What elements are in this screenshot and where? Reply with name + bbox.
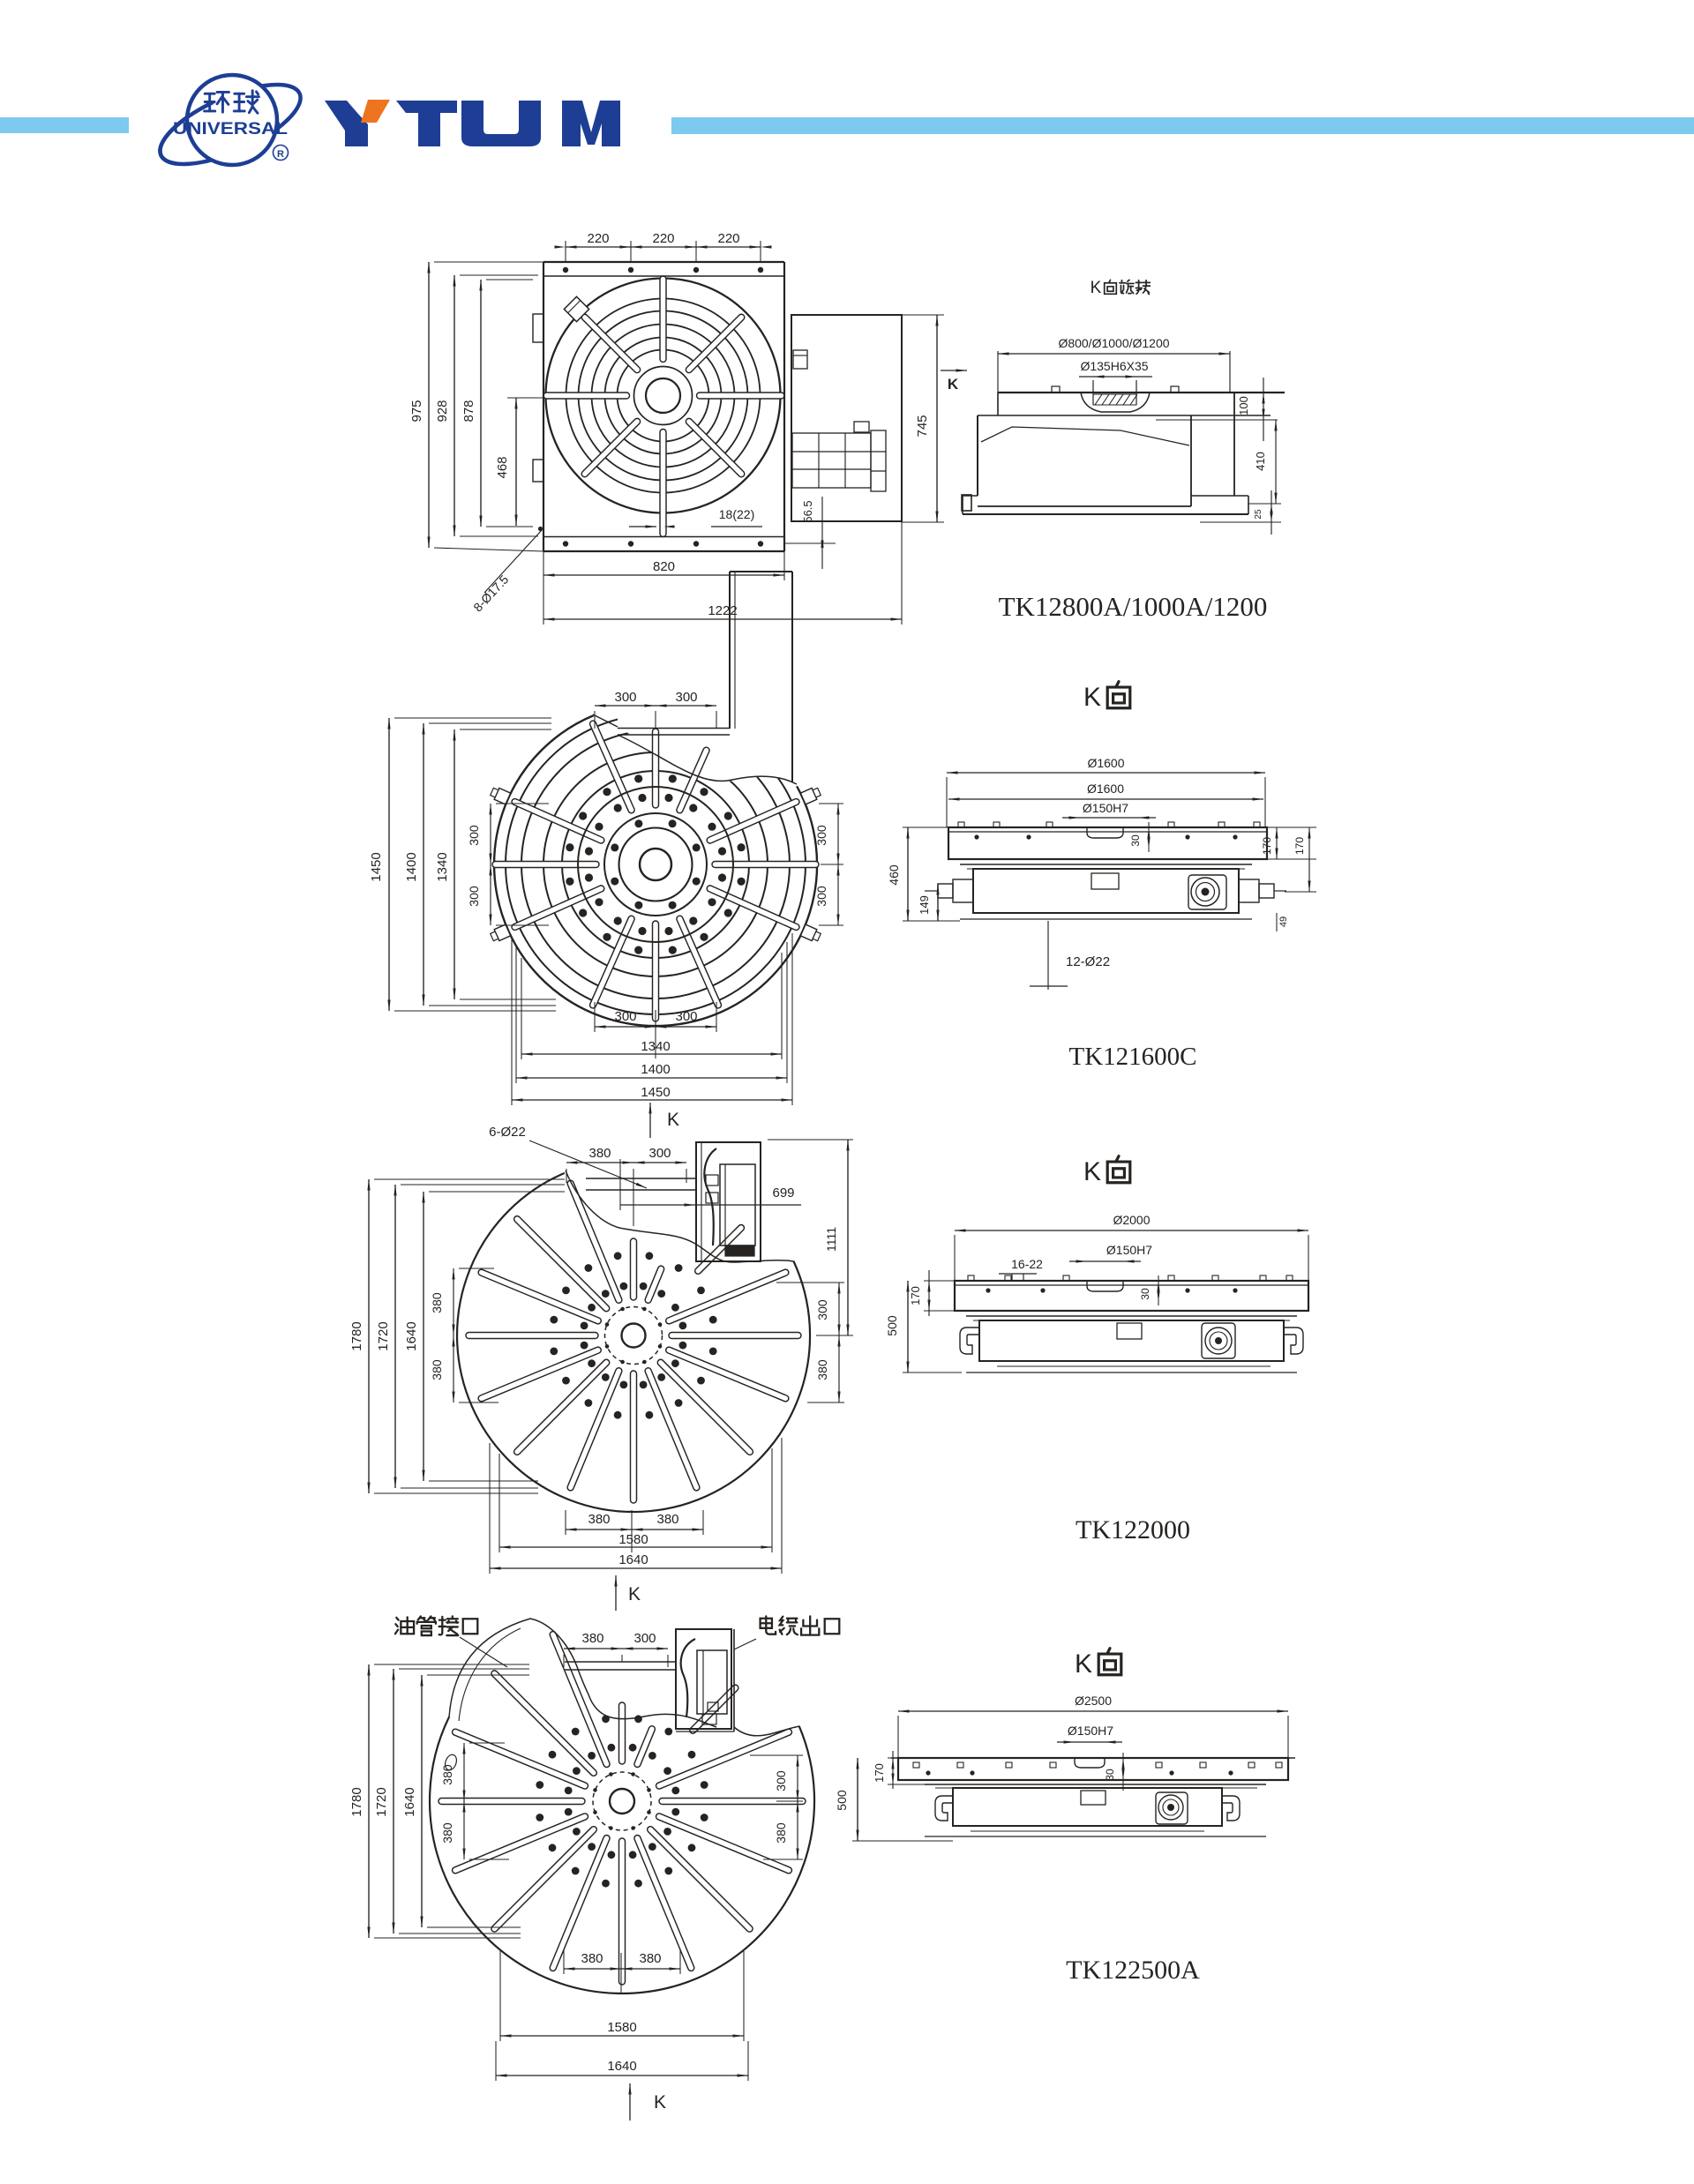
svg-text:1222: 1222 <box>708 603 737 618</box>
svg-text:170: 170 <box>1293 837 1306 855</box>
svg-text:30: 30 <box>1139 1288 1151 1300</box>
svg-text:R: R <box>277 149 284 160</box>
svg-text:380: 380 <box>440 1764 454 1785</box>
svg-text:878: 878 <box>461 400 476 422</box>
svg-text:380: 380 <box>639 1951 661 1966</box>
svg-text:380: 380 <box>774 1822 788 1844</box>
svg-text:1400: 1400 <box>641 1062 670 1077</box>
svg-text:Ø800/Ø1000/Ø1200: Ø800/Ø1000/Ø1200 <box>1058 336 1169 350</box>
svg-text:380: 380 <box>440 1822 454 1844</box>
svg-text:K: K <box>667 1110 679 1130</box>
svg-text:170: 170 <box>873 1763 886 1783</box>
svg-text:12-Ø22: 12-Ø22 <box>1066 954 1110 969</box>
svg-text:Ø150H7: Ø150H7 <box>1083 801 1128 815</box>
svg-text:1111: 1111 <box>824 1227 838 1252</box>
svg-text:928: 928 <box>435 400 450 422</box>
svg-text:25: 25 <box>1254 509 1263 520</box>
svg-text:30: 30 <box>1129 834 1142 847</box>
svg-text:300: 300 <box>774 1770 788 1791</box>
svg-text:K: K <box>628 1584 641 1604</box>
svg-text:380: 380 <box>430 1359 444 1380</box>
svg-text:Ø150H7: Ø150H7 <box>1068 1724 1113 1738</box>
svg-text:Ø1600: Ø1600 <box>1087 782 1124 796</box>
svg-text:745: 745 <box>915 415 930 437</box>
svg-text:380: 380 <box>581 1951 603 1966</box>
svg-text:TK121600C: TK121600C <box>1069 1043 1197 1071</box>
svg-text:1780: 1780 <box>349 1321 364 1350</box>
svg-text:220: 220 <box>587 231 609 246</box>
svg-text:300: 300 <box>814 886 828 907</box>
svg-text:1640: 1640 <box>404 1321 419 1350</box>
svg-text:TK122000: TK122000 <box>1076 1515 1190 1545</box>
svg-text:UNIVERSAL: UNIVERSAL <box>173 120 288 138</box>
svg-text:K: K <box>1091 279 1102 297</box>
svg-text:16-22: 16-22 <box>1011 1257 1043 1271</box>
svg-text:380: 380 <box>588 1146 611 1161</box>
svg-text:500: 500 <box>835 1790 849 1811</box>
svg-text:300: 300 <box>675 1009 697 1024</box>
svg-text:300: 300 <box>814 825 828 846</box>
svg-text:1450: 1450 <box>369 852 384 881</box>
svg-text:1780: 1780 <box>349 1787 364 1816</box>
svg-text:K: K <box>1083 1157 1101 1186</box>
svg-text:300: 300 <box>648 1146 671 1161</box>
svg-text:49: 49 <box>1278 916 1289 927</box>
svg-text:100: 100 <box>1237 396 1250 415</box>
svg-text:380: 380 <box>815 1359 829 1380</box>
svg-text:K: K <box>948 376 959 393</box>
svg-text:380: 380 <box>581 1631 603 1646</box>
svg-text:K: K <box>1075 1649 1092 1679</box>
svg-text:468: 468 <box>495 456 510 478</box>
svg-text:1640: 1640 <box>618 1552 648 1567</box>
svg-text:460: 460 <box>887 864 901 886</box>
svg-text:410: 410 <box>1254 452 1267 471</box>
svg-text:1720: 1720 <box>376 1321 391 1350</box>
svg-text:300: 300 <box>614 690 636 705</box>
svg-text:Ø2000: Ø2000 <box>1113 1213 1150 1227</box>
svg-text:300: 300 <box>467 886 481 907</box>
svg-text:1580: 1580 <box>618 1532 648 1547</box>
svg-text:1340: 1340 <box>435 852 450 881</box>
svg-text:149: 149 <box>918 895 931 915</box>
svg-text:18(22): 18(22) <box>719 507 754 521</box>
svg-text:Ø135H6X35: Ø135H6X35 <box>1080 359 1148 373</box>
svg-text:380: 380 <box>656 1512 678 1527</box>
svg-text:300: 300 <box>633 1631 656 1646</box>
svg-text:1450: 1450 <box>641 1085 670 1100</box>
svg-text:Ø1600: Ø1600 <box>1087 756 1124 770</box>
svg-text:170: 170 <box>1261 837 1273 855</box>
svg-text:6-Ø22: 6-Ø22 <box>489 1125 526 1140</box>
svg-text:Ø2500: Ø2500 <box>1075 1694 1112 1708</box>
svg-text:1400: 1400 <box>404 852 419 881</box>
svg-text:699: 699 <box>772 1185 794 1200</box>
svg-text:Ø150H7: Ø150H7 <box>1106 1243 1152 1257</box>
svg-text:1720: 1720 <box>374 1787 389 1816</box>
svg-text:K: K <box>654 2092 666 2113</box>
svg-text:220: 220 <box>717 231 739 246</box>
svg-text:300: 300 <box>815 1299 829 1320</box>
svg-text:30: 30 <box>1104 1769 1116 1781</box>
svg-text:380: 380 <box>588 1512 610 1527</box>
svg-text:1640: 1640 <box>607 2059 636 2074</box>
svg-text:K: K <box>1083 683 1101 712</box>
svg-text:500: 500 <box>885 1315 899 1336</box>
svg-text:300: 300 <box>675 690 697 705</box>
svg-text:300: 300 <box>614 1009 636 1024</box>
svg-text:1340: 1340 <box>641 1039 670 1054</box>
svg-text:300: 300 <box>467 825 481 846</box>
svg-text:TK122500A: TK122500A <box>1066 1956 1200 1985</box>
svg-text:TK12800A/1000A/1200: TK12800A/1000A/1200 <box>999 591 1268 622</box>
svg-text:380: 380 <box>430 1292 444 1313</box>
svg-text:170: 170 <box>909 1286 922 1305</box>
svg-text:975: 975 <box>409 400 424 422</box>
svg-text:220: 220 <box>652 231 674 246</box>
svg-text:820: 820 <box>653 559 675 574</box>
svg-text:56.5: 56.5 <box>801 500 814 522</box>
svg-text:1640: 1640 <box>402 1787 417 1816</box>
svg-text:1580: 1580 <box>607 2020 636 2035</box>
